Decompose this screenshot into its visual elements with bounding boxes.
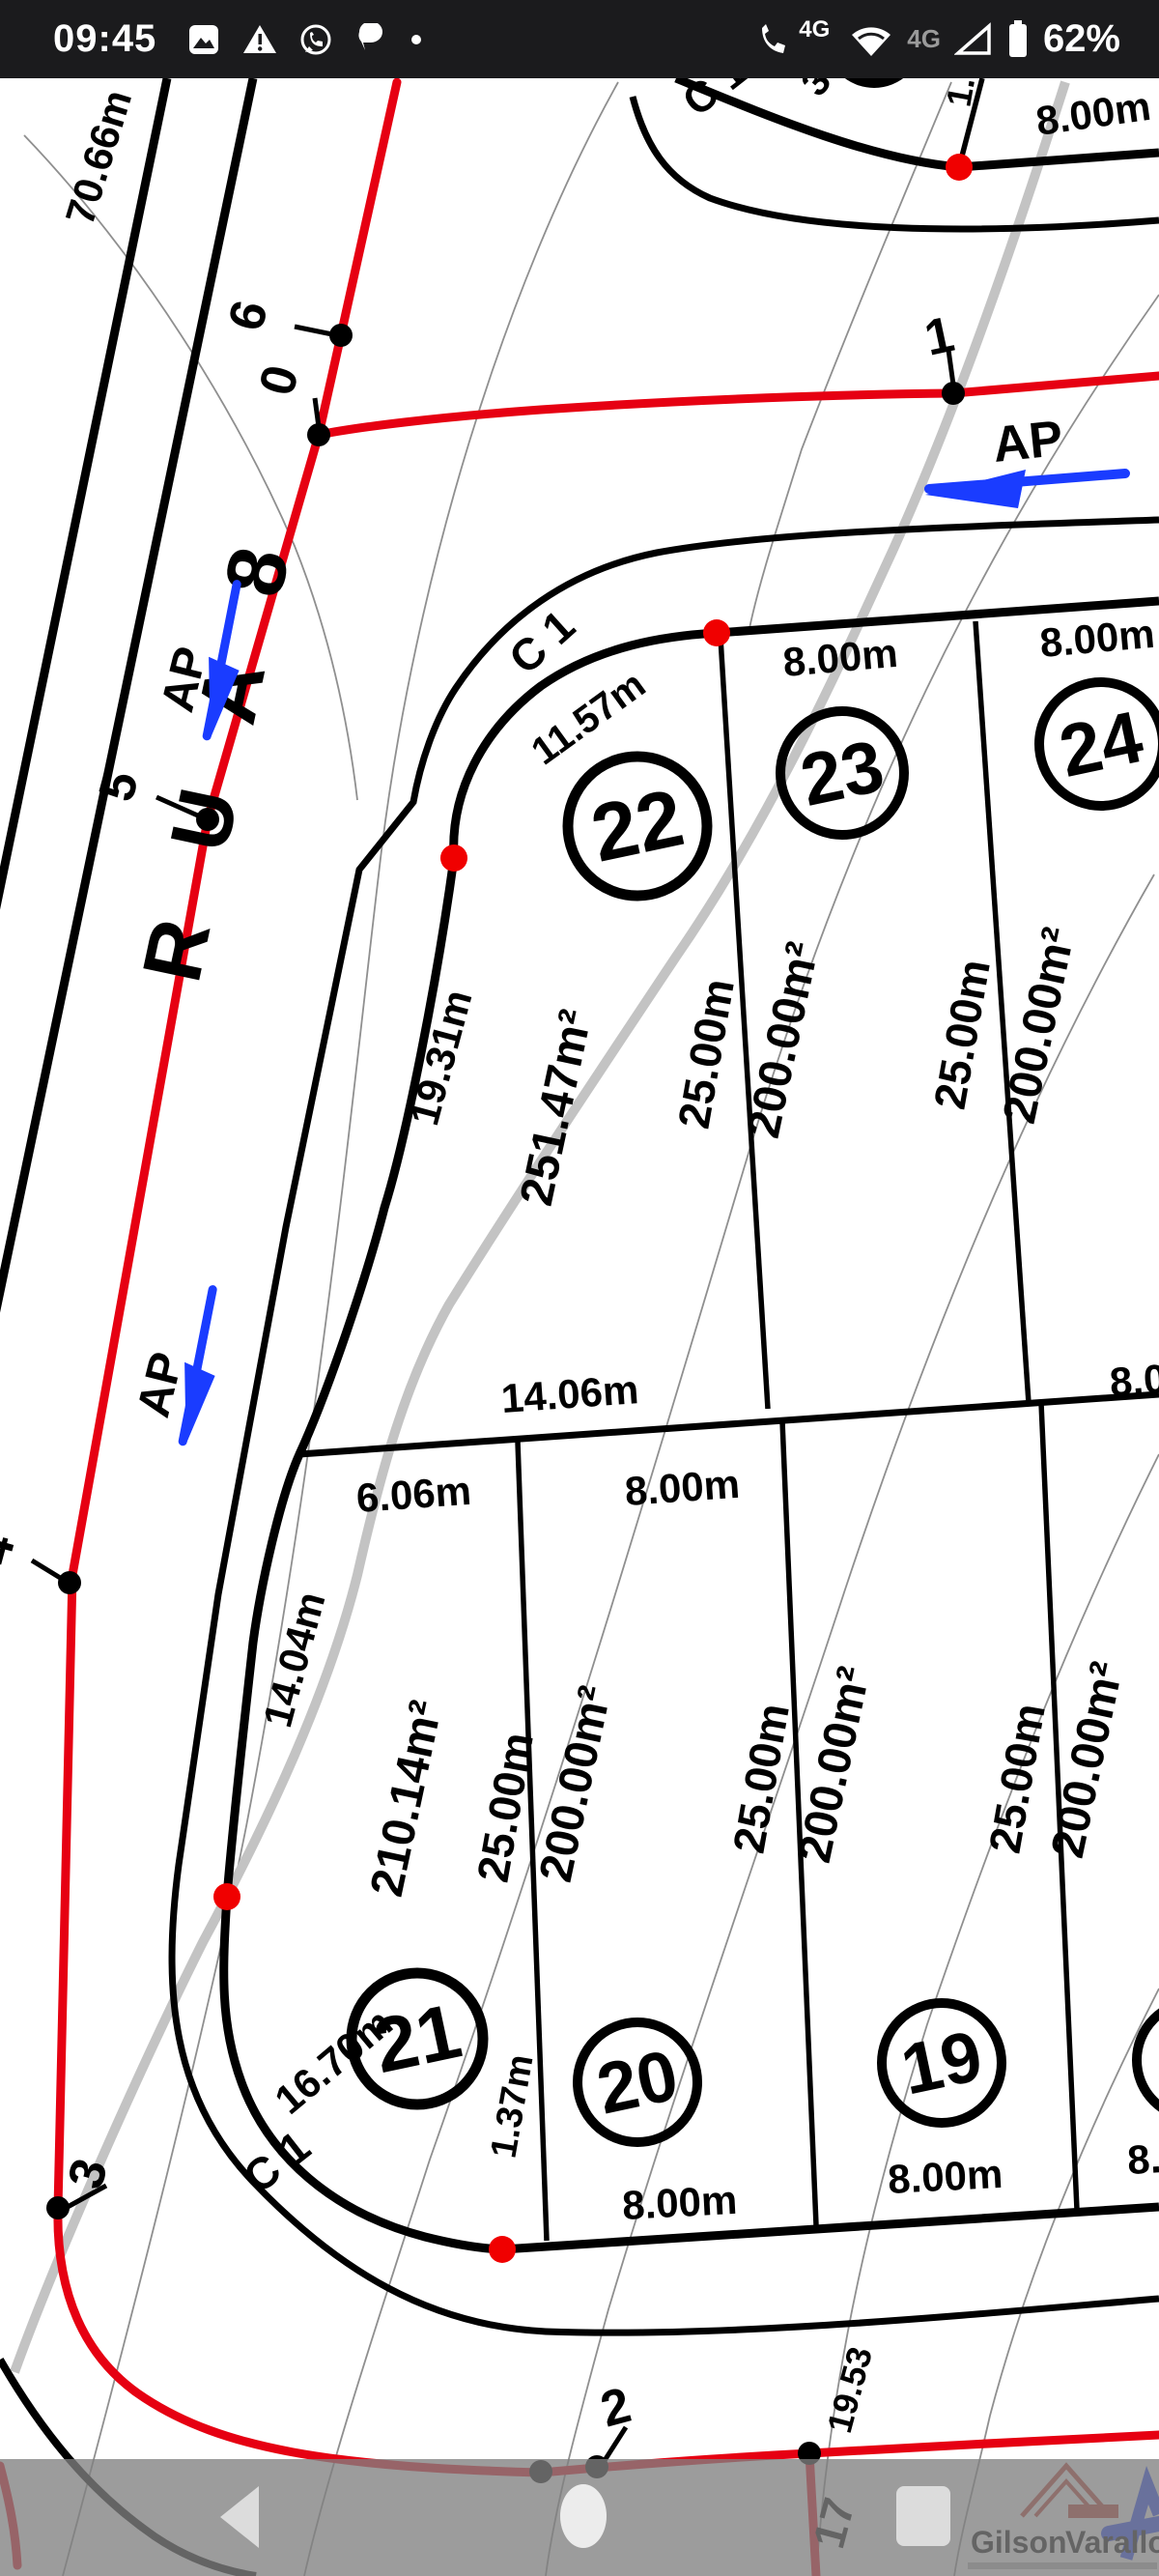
dim-14-06: 14.06m: [499, 1366, 639, 1421]
battery-icon: [1006, 18, 1030, 61]
dim-8-0-frag-right: 8.0: [1108, 1356, 1159, 1405]
whatsapp-notification-icon: [299, 23, 332, 56]
back-button-icon[interactable]: [220, 2486, 259, 2548]
recents-button-icon[interactable]: [896, 2486, 950, 2546]
signal-strength-icon: [954, 22, 993, 57]
chat-notification-icon: [353, 23, 388, 56]
ap-label-1: AP: [990, 411, 1065, 473]
lot-number-22: 22: [583, 771, 691, 878]
home-button-icon[interactable]: [560, 2484, 607, 2548]
lot-number-19: 19: [894, 2015, 989, 2109]
volte-4g-badge: 4G: [799, 16, 830, 43]
warning-notification-icon: [241, 23, 278, 56]
volte-phone-icon: [756, 20, 791, 59]
phone-screen: R U A 8 70.66m C 1 C 1 C 1 11.57m 19.31m…: [0, 0, 1159, 2576]
lot-number-20: 20: [590, 2034, 685, 2129]
dim-8-00-lot20-bottom: 8.00m: [621, 2177, 738, 2228]
status-bar: 09:45: [0, 0, 1159, 78]
dim-8-00-lot19-bottom: 8.00m: [887, 2151, 1004, 2202]
wifi-icon: [849, 21, 893, 58]
navigation-bar: [0, 2459, 1159, 2576]
lot-number-24: 24: [1053, 696, 1149, 793]
clock: 09:45: [53, 17, 156, 61]
dim-8-frag-right: 8.: [1126, 2135, 1159, 2183]
lot-number-23: 23: [794, 725, 890, 822]
battery-percent-label: 62%: [1043, 17, 1120, 61]
gallery-notification-icon: [187, 23, 220, 56]
lot-number-21: 21: [366, 1988, 468, 2090]
dim-6-06: 6.06m: [354, 1468, 472, 1521]
cellular-4g-badge: 4G: [907, 24, 941, 54]
dim-8-00-lot20-top: 8.00m: [623, 1461, 741, 1514]
more-notifications-dot-icon: [410, 33, 423, 46]
map-canvas[interactable]: R U A 8 70.66m C 1 C 1 C 1 11.57m 19.31m…: [0, 0, 1159, 2576]
